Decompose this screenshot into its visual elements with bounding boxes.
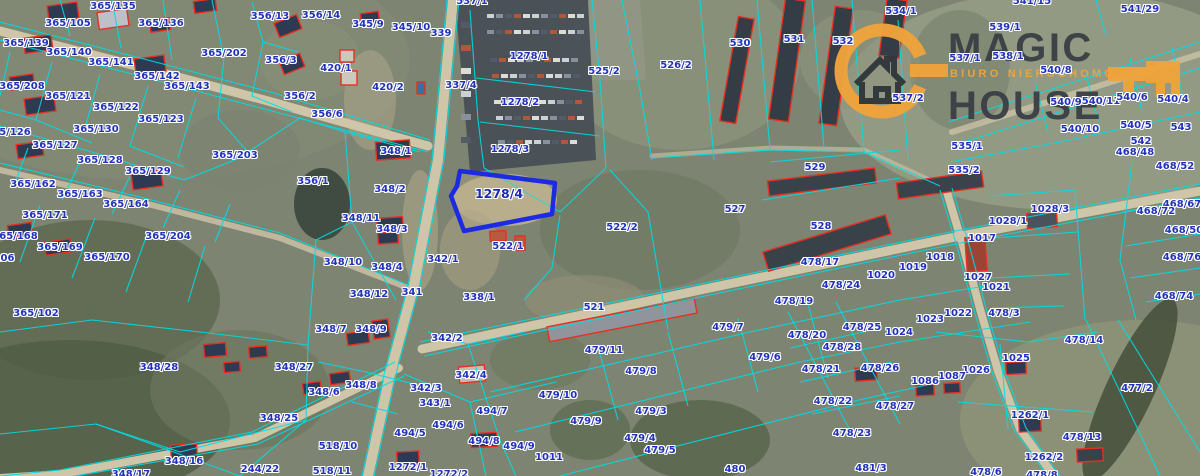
- logo-text-house: HOUSE: [948, 84, 1103, 128]
- highlighted-parcel-1278-4[interactable]: [451, 171, 555, 231]
- logo-text-magic: MAGIC: [948, 26, 1094, 70]
- logo-subtitle: BIURO NIERUCHOMOŚCI: [950, 67, 1144, 80]
- map-layers: MAGICBIURO NIERUCHOMOŚCIHOUSE: [0, 0, 1200, 476]
- satellite-map[interactable]: MAGICBIURO NIERUCHOMOŚCIHOUSE 365/135365…: [0, 0, 1200, 476]
